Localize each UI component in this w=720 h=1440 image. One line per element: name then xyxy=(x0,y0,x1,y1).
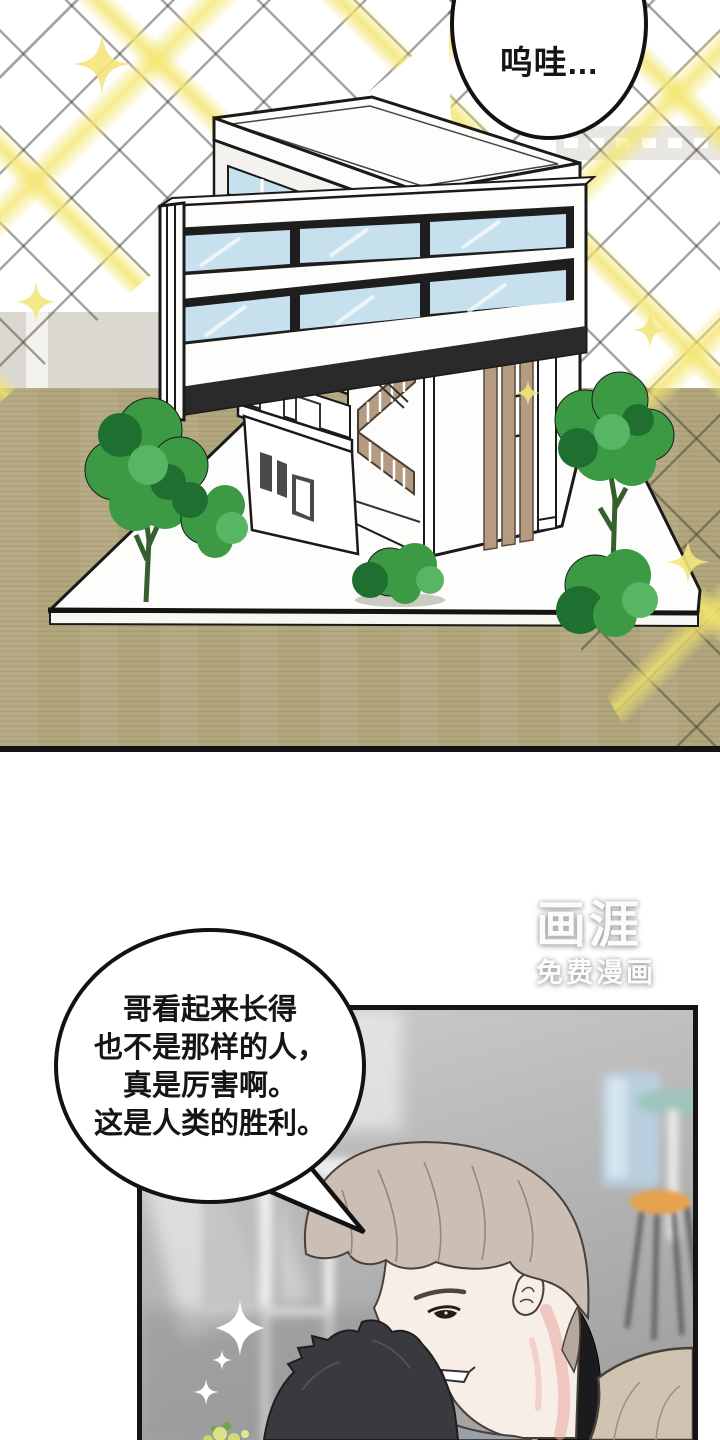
watermark-logo: 画涯 xyxy=(536,894,656,956)
panel1-border xyxy=(0,746,720,752)
speech-line: 也不是那样的人， xyxy=(94,1029,326,1067)
comic-page: 呜哇... xyxy=(0,0,720,1440)
blue-trash-bin xyxy=(602,1072,660,1187)
speech-line: 这是人类的胜利。 xyxy=(94,1105,326,1143)
wood-slats xyxy=(484,341,556,550)
speech-bubble-praise: 哥看起来长得 也不是那样的人， 真是厉害啊。 这是人类的胜利。 xyxy=(54,928,366,1204)
panel-model-room: 呜哇... xyxy=(0,0,720,752)
speech-text: 呜哇... xyxy=(454,36,644,84)
speech-line: 哥看起来长得 xyxy=(94,991,326,1029)
speech-text: 哥看起来长得 也不是那样的人， 真是厉害啊。 这是人类的胜利。 xyxy=(94,991,326,1143)
watermark-subtitle: 免费漫画 xyxy=(536,956,656,990)
speech-line: 真是厉害啊。 xyxy=(94,1067,326,1105)
site-watermark: 画涯 免费漫画 xyxy=(536,894,656,990)
